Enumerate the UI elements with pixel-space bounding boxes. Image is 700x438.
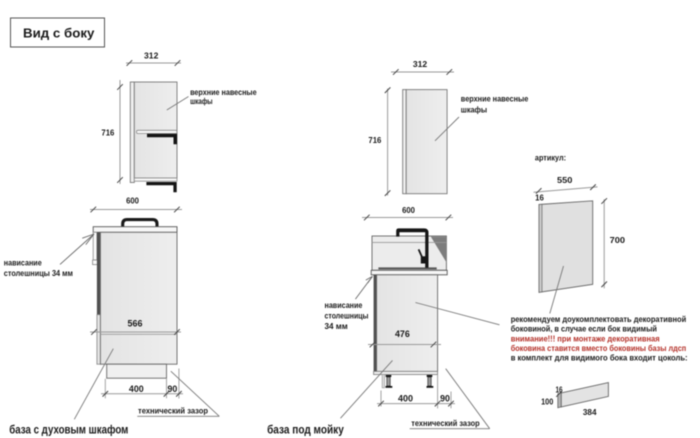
svg-text:база с духовым шкафом: база с духовым шкафом: [9, 422, 128, 436]
svg-text:100: 100: [541, 396, 553, 406]
svg-text:технический зазор: технический зазор: [411, 418, 480, 428]
svg-text:шкафы: шкафы: [461, 105, 487, 115]
svg-text:312: 312: [413, 59, 428, 69]
svg-text:рекомендуем доукомплектовать д: рекомендуем доукомплектовать декоративно…: [511, 314, 687, 324]
svg-text:476: 476: [395, 329, 410, 340]
svg-text:400: 400: [129, 384, 144, 395]
svg-text:550: 550: [557, 175, 573, 185]
svg-text:716: 716: [368, 135, 381, 145]
svg-text:артикул:: артикул:: [535, 153, 566, 163]
svg-text:Вид с боку: Вид с боку: [23, 25, 95, 40]
svg-text:внимание!!! при монтаже декора: внимание!!! при монтаже декоративная: [511, 333, 660, 343]
svg-text:шкафы: шкафы: [190, 96, 213, 106]
svg-text:16: 16: [535, 192, 544, 202]
svg-text:боковиной, в случае если бок в: боковиной, в случае если бок видимый: [511, 324, 657, 334]
svg-text:нависание: нависание: [4, 258, 42, 268]
svg-text:600: 600: [402, 205, 415, 215]
svg-text:716: 716: [101, 128, 114, 138]
svg-text:технический зазор: технический зазор: [138, 406, 208, 416]
svg-text:90: 90: [440, 394, 450, 405]
svg-text:нависание: нависание: [325, 300, 363, 310]
svg-text:90: 90: [168, 384, 178, 395]
svg-text:384: 384: [583, 407, 597, 417]
svg-text:700: 700: [610, 235, 626, 245]
svg-text:боковина ставится вместо боков: боковина ставится вместо боковины базы л…: [511, 343, 687, 353]
svg-text:566: 566: [128, 319, 143, 330]
svg-text:34 мм: 34 мм: [325, 321, 348, 331]
svg-text:столешницы: столешницы: [325, 310, 369, 320]
svg-text:312: 312: [144, 51, 159, 61]
svg-text:база под мойку: база под мойку: [267, 422, 344, 436]
svg-text:600: 600: [126, 196, 139, 206]
svg-text:400: 400: [398, 394, 413, 405]
svg-text:верхние навесные: верхние навесные: [461, 94, 529, 104]
svg-text:16: 16: [556, 384, 563, 394]
svg-text:в комплект для видимого бока в: в комплект для видимого бока входит цоко…: [511, 353, 688, 363]
svg-text:столешницы 34 мм: столешницы 34 мм: [4, 268, 73, 278]
